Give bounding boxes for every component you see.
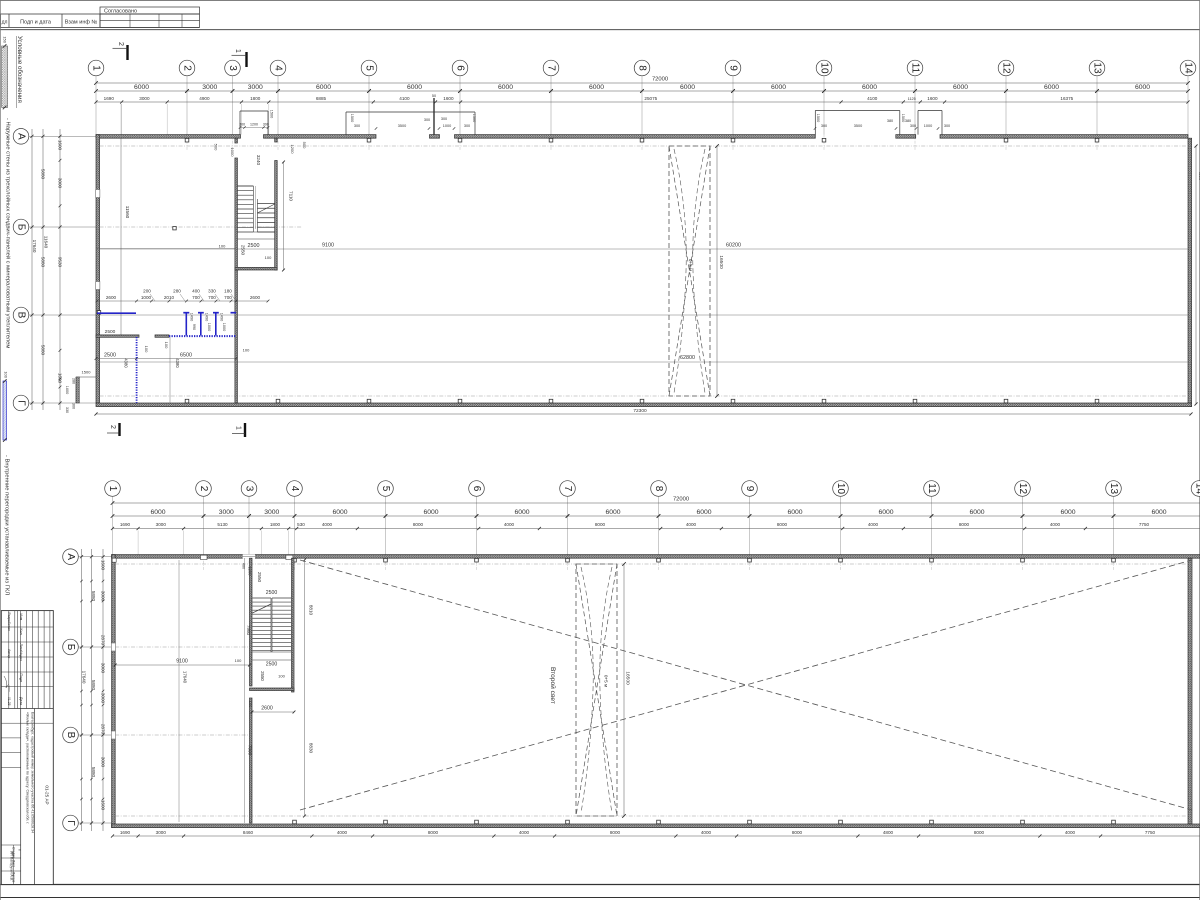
svg-text:12: 12 <box>1017 483 1028 495</box>
svg-text:11: 11 <box>926 483 937 494</box>
svg-text:2870: 2870 <box>101 635 106 646</box>
svg-text:1125: 1125 <box>908 97 916 101</box>
svg-text:А: А <box>65 553 76 560</box>
svg-text:3000: 3000 <box>101 591 106 602</box>
svg-text:1000: 1000 <box>141 295 152 300</box>
svg-text:8460: 8460 <box>243 830 254 835</box>
svg-text:990: 990 <box>192 324 196 330</box>
svg-text:6: 6 <box>455 65 466 71</box>
svg-text:1600: 1600 <box>443 96 454 101</box>
svg-text:дл: дл <box>2 20 8 26</box>
svg-text:2010: 2010 <box>164 295 175 300</box>
svg-text:300: 300 <box>354 124 360 128</box>
svg-text:9100: 9100 <box>322 243 334 249</box>
svg-text:3000: 3000 <box>139 96 150 101</box>
svg-text:25075: 25075 <box>644 96 657 101</box>
svg-text:5880: 5880 <box>41 345 46 356</box>
svg-text:6000: 6000 <box>150 509 165 516</box>
svg-text:500: 500 <box>214 144 219 151</box>
svg-text:4900: 4900 <box>199 96 210 101</box>
svg-text:5880: 5880 <box>41 169 46 180</box>
svg-text:6000: 6000 <box>332 509 347 516</box>
svg-text:6000: 6000 <box>969 509 984 516</box>
svg-text:0+5 м: 0+5 м <box>604 675 609 687</box>
svg-text:6000: 6000 <box>696 509 711 516</box>
svg-text:2550: 2550 <box>241 245 246 256</box>
svg-text:700: 700 <box>224 295 232 300</box>
svg-text:1600: 1600 <box>101 800 106 811</box>
svg-text:4000: 4000 <box>701 830 712 835</box>
svg-text:2600: 2600 <box>106 295 117 300</box>
svg-text:1: 1 <box>235 426 242 430</box>
svg-text:ИП Пахарукин А.В.: ИП Пахарукин А.В. <box>10 851 14 881</box>
svg-text:16500: 16500 <box>625 671 631 685</box>
svg-text:6000: 6000 <box>1135 84 1150 91</box>
svg-text:10: 10 <box>819 62 830 74</box>
svg-text:7750: 7750 <box>1145 830 1156 835</box>
svg-text:3500: 3500 <box>398 124 406 128</box>
svg-text:16375: 16375 <box>1060 96 1073 101</box>
svg-text:8000: 8000 <box>792 830 803 835</box>
svg-text:6000: 6000 <box>498 84 513 91</box>
svg-text:6000: 6000 <box>1044 84 1059 91</box>
svg-text:4000: 4000 <box>1065 830 1076 835</box>
svg-text:9100: 9100 <box>176 659 188 665</box>
svg-text:Согласовано: Согласовано <box>104 9 137 15</box>
svg-text:5880: 5880 <box>91 767 96 778</box>
svg-text:1500: 1500 <box>816 114 820 122</box>
svg-text:Второй свет: Второй свет <box>549 667 557 704</box>
svg-text:1000: 1000 <box>230 148 235 158</box>
svg-text:60200: 60200 <box>726 243 741 249</box>
svg-text:7110: 7110 <box>289 191 294 201</box>
svg-text:01.25: 01.25 <box>7 697 11 706</box>
svg-text:6000: 6000 <box>680 84 695 91</box>
svg-text:4000: 4000 <box>1050 522 1061 527</box>
svg-text:1600: 1600 <box>58 140 63 151</box>
svg-text:2600: 2600 <box>261 706 273 712</box>
svg-text:6000: 6000 <box>605 509 620 516</box>
svg-text:62800: 62800 <box>680 355 695 361</box>
svg-text:- Наружные стены из трехслойны: - Наружные стены из трехслойных сэндвич-… <box>5 118 12 348</box>
svg-text:1: 1 <box>91 65 102 71</box>
svg-text:2870: 2870 <box>101 724 106 735</box>
svg-text:1000: 1000 <box>207 323 211 331</box>
svg-text:3000: 3000 <box>101 663 106 674</box>
svg-text:1490: 1490 <box>190 313 194 321</box>
svg-text:14: 14 <box>1194 483 1200 495</box>
svg-text:«Жилые склады», расположенные: «Жилые склады», расположенные по адресу:… <box>26 712 30 824</box>
svg-text:480: 480 <box>242 563 246 569</box>
svg-text:3000: 3000 <box>101 757 106 768</box>
svg-text:300: 300 <box>821 124 827 128</box>
svg-text:5880: 5880 <box>41 257 46 268</box>
svg-text:10: 10 <box>835 483 846 495</box>
svg-text:1600: 1600 <box>927 96 938 101</box>
svg-text:12: 12 <box>1001 62 1012 74</box>
svg-text:1500: 1500 <box>901 114 905 122</box>
svg-text:500: 500 <box>302 142 307 149</box>
svg-text:100: 100 <box>248 701 253 708</box>
svg-text:6500: 6500 <box>180 353 192 359</box>
svg-text:5: 5 <box>380 486 391 492</box>
svg-text:2550: 2550 <box>257 572 262 583</box>
svg-text:Разработал: Разработал <box>7 613 11 631</box>
svg-text:300: 300 <box>464 124 470 128</box>
svg-text:100: 100 <box>4 371 9 378</box>
svg-text:100: 100 <box>144 346 149 353</box>
svg-text:16500: 16500 <box>718 255 724 269</box>
svg-text:72300: 72300 <box>633 408 647 414</box>
svg-text:Автор: Автор <box>7 649 11 658</box>
svg-text:2500: 2500 <box>248 243 260 249</box>
svg-text:17640: 17640 <box>32 240 37 253</box>
svg-text:1: 1 <box>234 49 241 53</box>
svg-text:1500: 1500 <box>350 114 354 122</box>
svg-text:380: 380 <box>887 119 893 123</box>
svg-text:1000: 1000 <box>924 124 932 128</box>
svg-text:1500: 1500 <box>472 114 476 122</box>
svg-text:6000: 6000 <box>316 84 331 91</box>
svg-text:1600: 1600 <box>101 560 106 571</box>
svg-text:1000: 1000 <box>443 124 451 128</box>
svg-text:5880: 5880 <box>91 591 96 602</box>
svg-text:7750: 7750 <box>1139 522 1150 527</box>
svg-text:6: 6 <box>471 486 482 492</box>
svg-text:3000: 3000 <box>58 178 63 189</box>
svg-text:8000: 8000 <box>428 830 439 835</box>
svg-text:5880: 5880 <box>91 680 96 691</box>
svg-text:6000: 6000 <box>589 84 604 91</box>
svg-text:700: 700 <box>192 295 200 300</box>
svg-text:530: 530 <box>297 522 305 527</box>
svg-text:Подп и дата: Подп и дата <box>20 20 52 26</box>
svg-text:В: В <box>16 312 27 319</box>
svg-text:7: 7 <box>546 65 557 71</box>
svg-text:4100: 4100 <box>399 96 410 101</box>
svg-text:2550: 2550 <box>260 671 265 681</box>
svg-text:8000: 8000 <box>413 522 424 527</box>
svg-text:3000: 3000 <box>248 84 263 91</box>
svg-text:2500: 2500 <box>266 662 278 668</box>
svg-text:2500: 2500 <box>104 353 116 359</box>
svg-text:11560: 11560 <box>125 206 130 219</box>
svg-text:2500: 2500 <box>105 329 116 335</box>
svg-text:Изм: Изм <box>19 614 23 621</box>
svg-text:13: 13 <box>1092 62 1103 74</box>
svg-text:2: 2 <box>198 486 209 492</box>
svg-text:3000: 3000 <box>219 509 234 516</box>
svg-text:1490: 1490 <box>205 313 209 321</box>
svg-text:1800: 1800 <box>270 522 281 527</box>
svg-text:300: 300 <box>72 403 76 409</box>
svg-text:6000: 6000 <box>862 84 877 91</box>
svg-text:7: 7 <box>562 486 573 492</box>
svg-text:3: 3 <box>227 65 238 71</box>
svg-text:8000: 8000 <box>595 522 606 527</box>
svg-text:180: 180 <box>224 289 232 294</box>
svg-text:4: 4 <box>273 65 284 71</box>
svg-text:8000: 8000 <box>610 830 621 835</box>
svg-text:9: 9 <box>744 486 755 492</box>
svg-text:8830: 8830 <box>309 743 314 754</box>
svg-text:Г: Г <box>65 820 76 826</box>
svg-text:3000: 3000 <box>156 830 167 835</box>
svg-text:А: А <box>16 133 27 140</box>
svg-text:1000: 1000 <box>222 323 226 331</box>
svg-text:4800: 4800 <box>883 830 894 835</box>
svg-text:14: 14 <box>1183 62 1194 74</box>
svg-text:6000: 6000 <box>134 84 149 91</box>
svg-text:8: 8 <box>653 486 664 492</box>
svg-text:8000: 8000 <box>777 522 788 527</box>
svg-text:4000: 4000 <box>519 830 530 835</box>
svg-text:4000: 4000 <box>322 522 333 527</box>
svg-text:300: 300 <box>944 124 950 128</box>
svg-text:6885: 6885 <box>316 96 327 101</box>
svg-text:4000: 4000 <box>337 830 348 835</box>
svg-text:1200: 1200 <box>250 123 258 127</box>
svg-text:6000: 6000 <box>1060 509 1075 516</box>
svg-text:17640: 17640 <box>82 671 87 684</box>
svg-text:1500: 1500 <box>82 370 92 375</box>
svg-text:280: 280 <box>72 378 76 384</box>
svg-text:300: 300 <box>441 117 447 121</box>
svg-text:1600: 1600 <box>58 373 63 384</box>
svg-text:1800: 1800 <box>250 96 261 101</box>
svg-text:6000: 6000 <box>787 509 802 516</box>
svg-text:1600: 1600 <box>65 386 69 394</box>
svg-text:6000: 6000 <box>514 509 529 516</box>
svg-text:100: 100 <box>243 348 250 353</box>
svg-text:4000: 4000 <box>868 522 879 527</box>
svg-text:11: 11 <box>910 63 921 74</box>
svg-text:7960: 7960 <box>246 625 251 636</box>
svg-text:72000: 72000 <box>652 77 668 83</box>
svg-text:5130: 5130 <box>217 522 228 527</box>
svg-text:330: 330 <box>208 289 216 294</box>
svg-text:8: 8 <box>637 65 648 71</box>
svg-text:3240: 3240 <box>256 155 261 166</box>
svg-text:Лист№док: Лист№док <box>19 644 23 662</box>
svg-text:8000: 8000 <box>974 830 985 835</box>
svg-text:150: 150 <box>3 36 8 43</box>
svg-text:300: 300 <box>910 124 916 128</box>
svg-text:280: 280 <box>173 289 181 294</box>
svg-text:4: 4 <box>289 486 300 492</box>
svg-text:300: 300 <box>424 118 430 122</box>
svg-text:7000: 7000 <box>248 745 253 756</box>
svg-text:9530: 9530 <box>58 257 63 268</box>
svg-text:6000: 6000 <box>407 84 422 91</box>
svg-text:1690: 1690 <box>120 830 131 835</box>
svg-text:Подп: Подп <box>19 674 23 683</box>
svg-text:6000: 6000 <box>423 509 438 516</box>
svg-text:3000: 3000 <box>202 84 217 91</box>
svg-text:2600: 2600 <box>250 295 261 300</box>
svg-text:2: 2 <box>117 42 124 46</box>
svg-text:4380: 4380 <box>124 358 129 368</box>
svg-text:100: 100 <box>164 342 169 349</box>
svg-text:100: 100 <box>219 244 226 249</box>
svg-text:2: 2 <box>182 65 193 71</box>
svg-text:100: 100 <box>265 255 272 260</box>
svg-text:100: 100 <box>235 658 242 663</box>
svg-text:3000: 3000 <box>101 693 106 704</box>
svg-text:200: 200 <box>143 289 151 294</box>
svg-text:1: 1 <box>107 486 118 492</box>
svg-text:01-25 АР: 01-25 АР <box>45 785 50 804</box>
svg-text:0+5 м: 0+5 м <box>688 259 693 271</box>
svg-text:Екатеринбург, кадастровый номе: Екатеринбург, кадастровый номер земельно… <box>31 712 35 833</box>
svg-text:400: 400 <box>192 289 200 294</box>
svg-text:17640: 17640 <box>183 671 188 684</box>
svg-text:8000: 8000 <box>959 522 970 527</box>
svg-text:6000: 6000 <box>771 84 786 91</box>
svg-text:72000: 72000 <box>673 497 689 503</box>
svg-text:4380: 4380 <box>175 358 180 368</box>
svg-text:100: 100 <box>278 674 285 679</box>
svg-text:8810: 8810 <box>309 605 314 616</box>
svg-text:3500: 3500 <box>854 124 862 128</box>
svg-text:Б: Б <box>65 644 76 651</box>
svg-text:3000: 3000 <box>156 522 167 527</box>
svg-text:Г: Г <box>16 400 27 406</box>
svg-text:13: 13 <box>1108 483 1119 495</box>
svg-text:Б: Б <box>16 224 27 231</box>
svg-text:3000: 3000 <box>264 509 279 516</box>
svg-text:6000: 6000 <box>1151 509 1166 516</box>
svg-text:6000: 6000 <box>953 84 968 91</box>
svg-text:- Внутренние перегородки устан: - Внутренние перегородки устанавливаемые… <box>4 455 10 595</box>
svg-text:9: 9 <box>728 65 739 71</box>
svg-text:4000: 4000 <box>504 522 515 527</box>
svg-text:1200: 1200 <box>290 145 295 155</box>
svg-text:330: 330 <box>65 407 69 413</box>
svg-text:1690: 1690 <box>104 96 115 101</box>
svg-text:2: 2 <box>109 425 116 429</box>
svg-text:1690: 1690 <box>120 522 131 527</box>
svg-text:4000: 4000 <box>686 522 697 527</box>
svg-text:2500: 2500 <box>266 590 278 596</box>
svg-text:1200: 1200 <box>248 567 253 577</box>
svg-text:700: 700 <box>208 295 216 300</box>
svg-text:50: 50 <box>432 94 436 98</box>
svg-text:4100: 4100 <box>867 96 878 101</box>
svg-text:3: 3 <box>244 486 255 492</box>
svg-text:5: 5 <box>364 65 375 71</box>
svg-text:Условные обозначения: Условные обозначения <box>16 36 23 103</box>
svg-text:В: В <box>65 732 76 739</box>
svg-text:11640: 11640 <box>44 236 49 249</box>
svg-text:Кол: Кол <box>19 629 23 635</box>
svg-text:1500: 1500 <box>270 110 274 118</box>
svg-text:Взам инф №: Взам инф № <box>65 20 98 26</box>
svg-text:6000: 6000 <box>878 509 893 516</box>
svg-text:Дата: Дата <box>19 697 23 705</box>
svg-text:1490: 1490 <box>220 313 224 321</box>
